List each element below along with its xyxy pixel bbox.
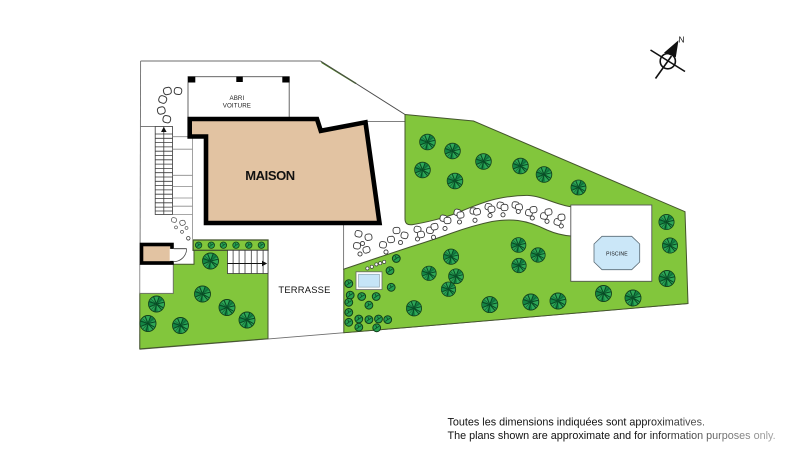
svg-text:The plans shown are approximat: The plans shown are approximate and for …: [448, 430, 776, 442]
svg-text:MAISON: MAISON: [245, 168, 295, 183]
svg-text:PISCINE: PISCINE: [606, 252, 628, 258]
svg-text:TERRASSE: TERRASSE: [278, 284, 330, 295]
svg-text:VOITURE: VOITURE: [223, 102, 251, 109]
svg-text:N: N: [678, 35, 684, 45]
svg-text:ABRI: ABRI: [229, 95, 244, 102]
svg-text:Toutes les dimensions indiquée: Toutes les dimensions indiquées sont app…: [448, 417, 705, 429]
